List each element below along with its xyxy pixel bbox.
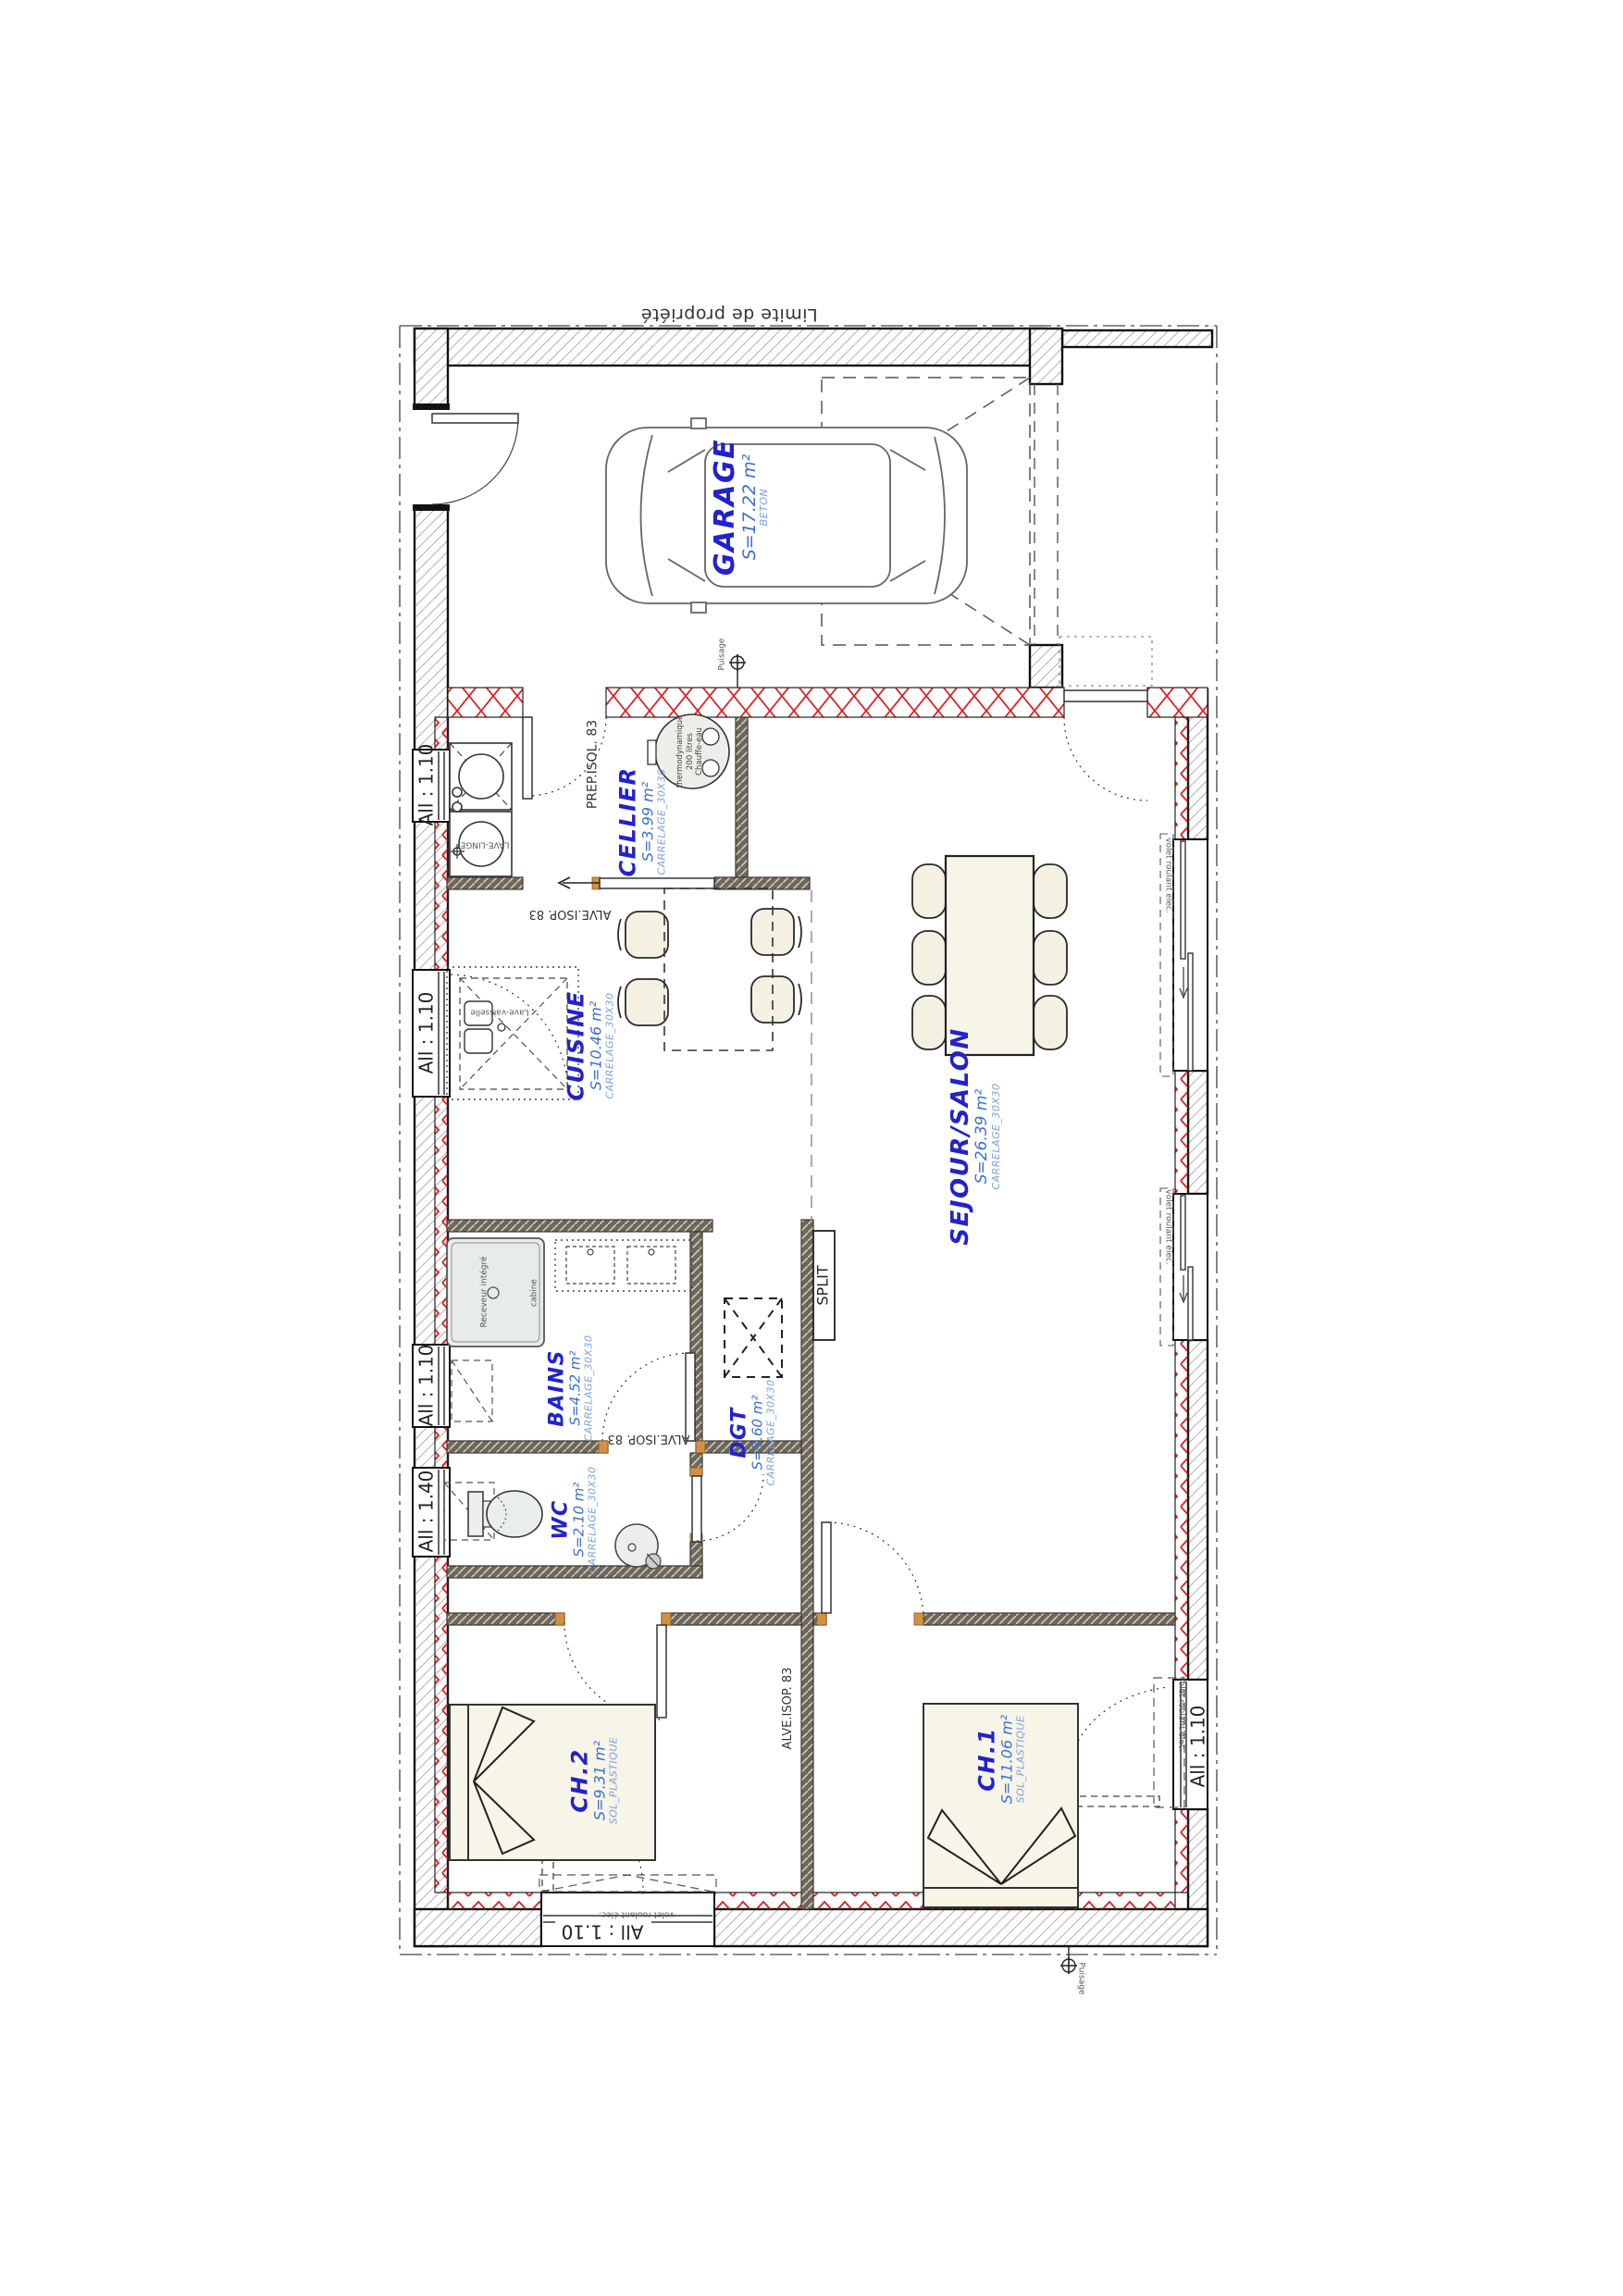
window-label-wc: All : 1.40 <box>417 1471 437 1553</box>
toilet <box>468 1491 542 1537</box>
door-ch1 <box>822 1522 923 1620</box>
double-vanity <box>555 1240 692 1291</box>
door-bains <box>602 1353 695 1441</box>
bed-ch2 <box>450 1705 655 1860</box>
room-label-wc: WC S=2.10 m² CARRELAGE_30X30 <box>550 1466 597 1572</box>
washer-dryer <box>450 743 512 876</box>
puisage-top <box>729 654 746 688</box>
room-label-cellier: CELLIER S=3.99 m² CARRELAGE_30X30 <box>617 767 668 877</box>
puisage-label-bottom: Puisage <box>1076 1963 1084 1995</box>
door-frames <box>555 877 923 1625</box>
shower-tray-label: Receveur intégré <box>480 1256 489 1327</box>
window-label-bains: All : 1.10 <box>417 1345 437 1427</box>
window-label-ch1: All : 1.10 <box>1189 1706 1208 1788</box>
garage-area <box>606 378 1058 645</box>
window-label-ch2: All : 1.10 <box>562 1922 644 1942</box>
puisage-label-top: Puisage <box>718 639 726 671</box>
prep-isol-label: PREP.ISOL. 83 <box>587 720 601 809</box>
shutter-label-bay1: volet roulant élec. <box>1163 838 1171 912</box>
room-label-ch2: CH.2 S=9.31 m² SOL_PLASTIQUE <box>569 1737 620 1825</box>
shutter-label-ch2: volet roulant élec. <box>599 1909 674 1917</box>
window-label-cuisine: All : 1.10 <box>417 992 437 1074</box>
hand-basin <box>615 1524 661 1569</box>
alve-isop-label-3: ALVE.ISOP. 83 <box>782 1668 795 1750</box>
water-heater-label: thermodynamique 200 litres Chauffe-eau <box>675 715 705 788</box>
puisage-bottom <box>1060 1946 1077 1974</box>
car <box>606 418 967 613</box>
room-label-cuisine: CUISINE S=10.46 m² CARRELAGE_30X30 <box>565 990 616 1100</box>
window-label-cellier: All : 1.10 <box>417 744 437 826</box>
attic-hatch <box>725 1298 782 1377</box>
property-limit-label: Limite de propriété <box>640 304 817 323</box>
room-label-garage: GARAGE S=17.22 m² BETON <box>711 439 770 576</box>
kitchen-furniture <box>447 888 801 1099</box>
alve-isop-label-2: ALVE.ISOP. 83 <box>608 1432 690 1445</box>
dining-set <box>912 856 1067 1055</box>
room-label-dgt: DGT S=3.60 m² CARRELAGE_30X30 <box>728 1379 775 1485</box>
shower-cabin-label: cabine <box>530 1279 539 1307</box>
room-label-bains: BAINS S=4.52 m² CARRELAGE_30X30 <box>546 1334 593 1441</box>
split-label: SPLIT <box>816 1265 832 1305</box>
room-label-ch1: CH.1 S=11.06 m² SOL_PLASTIQUE <box>976 1715 1027 1804</box>
floor-plan-page: GARAGE S=17.22 m² BETON CELLIER S=3.99 m… <box>0 0 1623 2296</box>
floor-plan-drawing <box>0 0 1623 2296</box>
garage-service-door <box>413 403 518 511</box>
shutter-label-bay2: volet roulant élec. <box>1163 1189 1171 1264</box>
dishwasher-label: Lave-vaisselle <box>470 1007 528 1015</box>
door-sliding-cellier <box>559 877 714 888</box>
washer-label: LAVE-LINGE <box>461 839 510 848</box>
shutter-label-ch1: volet roulant élec. <box>1176 1676 1184 1751</box>
alve-isop-label-1: ALVE.ISOP. 83 <box>529 907 612 920</box>
kitchen-table <box>618 888 801 1050</box>
door-entry <box>1059 637 1152 800</box>
room-label-sejour: SEJOUR/SALON S=26.39 m² CARRELAGE_30X30 <box>948 1027 1002 1245</box>
